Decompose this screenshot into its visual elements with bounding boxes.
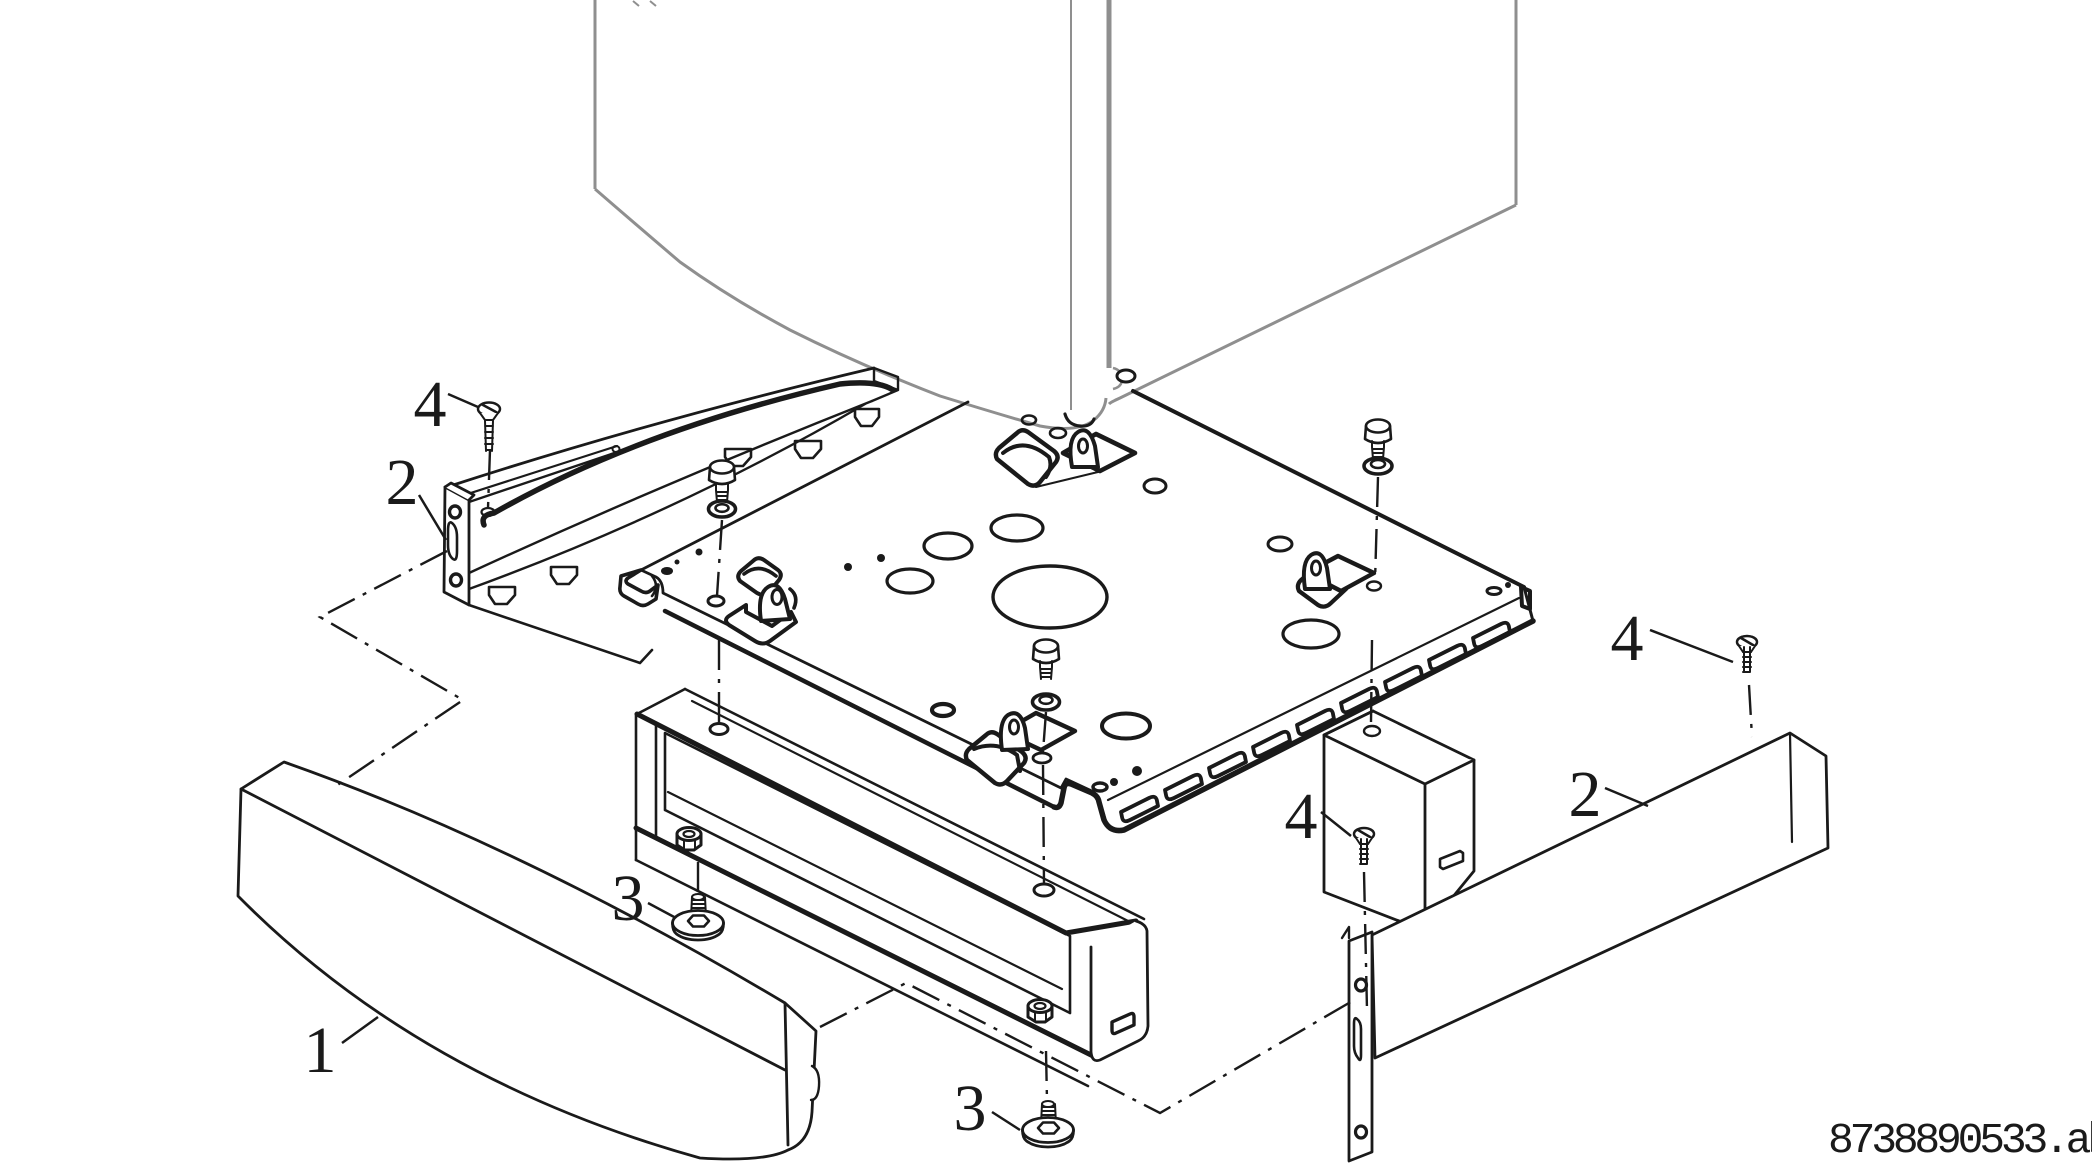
svg-text:4: 4	[1285, 780, 1318, 853]
svg-text:8738890533.ab: 8738890533.ab	[1828, 1116, 2092, 1163]
svg-text:4: 4	[414, 368, 447, 441]
svg-text:3: 3	[954, 1072, 987, 1145]
svg-text:2: 2	[1569, 758, 1602, 831]
svg-text:1: 1	[304, 1014, 337, 1087]
svg-text:4: 4	[1611, 602, 1644, 675]
svg-text:3: 3	[612, 862, 645, 935]
svg-text:2: 2	[386, 446, 419, 519]
